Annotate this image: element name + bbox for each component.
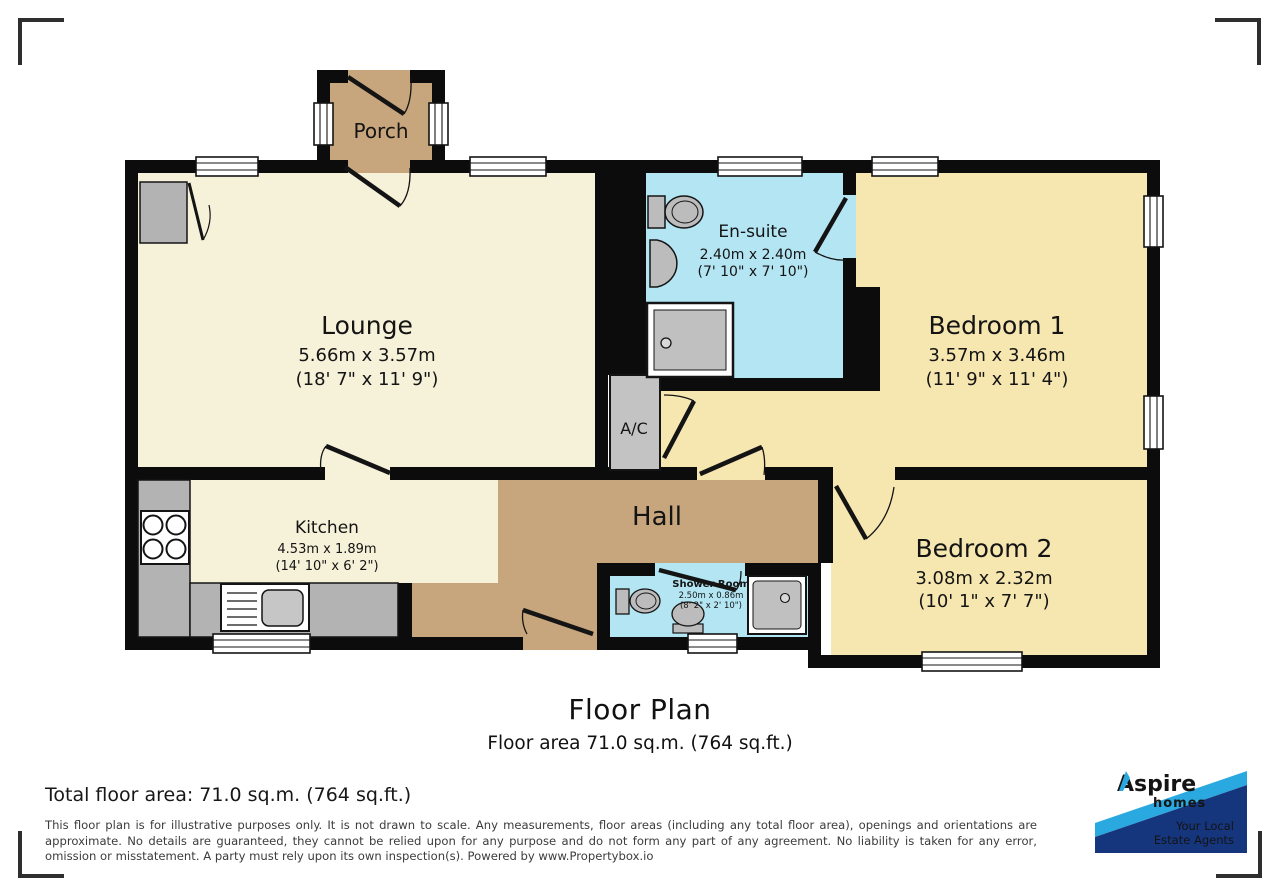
window (213, 634, 310, 653)
kitchen-label: Kitchen (295, 518, 359, 538)
bedroom1-label: Bedroom 1 (929, 311, 1066, 340)
agency-logo: Aspire homes Your Local Estate Agents (1095, 766, 1247, 855)
logo-tagline-line2: Estate Agents (1154, 833, 1234, 847)
porch-label: Porch (353, 119, 408, 143)
bedroom2-dims-m: 3.08m x 2.32m (915, 568, 1052, 589)
window (314, 103, 333, 145)
shower-room-toilet-icon (616, 589, 660, 614)
lounge-label: Lounge (321, 311, 413, 340)
shower-room-dims-m: 2.50m x 0.86m (679, 591, 744, 601)
corner-bracket-top-left (18, 18, 64, 65)
window (718, 157, 802, 176)
front-door-gap-floor (523, 637, 597, 650)
kitchen-sink-icon (221, 584, 309, 631)
logo-homes-text: homes (1153, 796, 1206, 811)
window (470, 157, 546, 176)
floor-plan-drawing: Porch Lounge 5.66m x 3.57m (18' 7" x 11'… (0, 0, 1280, 690)
kitchen-dims-m: 4.53m x 1.89m (277, 542, 376, 557)
ensuite-dims-ft: (7' 10" x 7' 10") (697, 264, 808, 280)
hob-icon (141, 511, 189, 564)
floor-plan-page: Porch Lounge 5.66m x 3.57m (18' 7" x 11'… (0, 0, 1280, 895)
bedroom1-dims-ft: (11' 9" x 11' 4") (926, 369, 1069, 390)
corner-bracket-top-right (1215, 18, 1261, 65)
bedroom2-door-gap-floor (833, 467, 895, 480)
disclaimer-text: This floor plan is for illustrative purp… (45, 818, 1037, 865)
kitchen-dims-ft: (14' 10" x 6' 2") (275, 559, 378, 574)
ac-label: A/C (620, 419, 648, 438)
ensuite-dims-m: 2.40m x 2.40m (700, 247, 807, 263)
ensuite-toilet-icon (648, 196, 703, 228)
shower-room-shower-icon (748, 576, 806, 634)
window (1144, 396, 1163, 449)
floor-area-subtitle: Floor area 71.0 sq.m. (764 sq.ft.) (0, 733, 1280, 754)
window (872, 157, 938, 176)
logo-brand-text: Aspire (1117, 772, 1196, 797)
bedroom1-dims-m: 3.57m x 3.46m (928, 345, 1065, 366)
bedroom2-dims-ft: (10' 1" x 7' 7") (918, 591, 1049, 612)
window (429, 103, 448, 145)
shower-room-dims-ft: (8' 2" x 2' 10") (680, 601, 742, 611)
total-floor-area: Total floor area: 71.0 sq.m. (764 sq.ft.… (45, 784, 411, 806)
ensuite-label: En-suite (718, 222, 787, 242)
hall-label: Hall (632, 502, 682, 532)
plan-title-block: Floor Plan Floor area 71.0 sq.m. (764 sq… (0, 693, 1280, 754)
window (922, 652, 1022, 671)
ensuite-door-gap-floor (843, 195, 856, 258)
lounge-dims-ft: (18' 7" x 11' 9") (296, 369, 439, 390)
shower-room-label: Shower Room (672, 579, 750, 590)
page-title: Floor Plan (0, 693, 1280, 726)
window (1144, 196, 1163, 247)
logo-tagline-line1: Your Local (1175, 819, 1234, 833)
window (688, 634, 737, 653)
bedroom2-label: Bedroom 2 (916, 534, 1053, 563)
lounge-dims-m: 5.66m x 3.57m (298, 345, 435, 366)
ensuite-shower-icon (647, 303, 733, 377)
window (196, 157, 258, 176)
